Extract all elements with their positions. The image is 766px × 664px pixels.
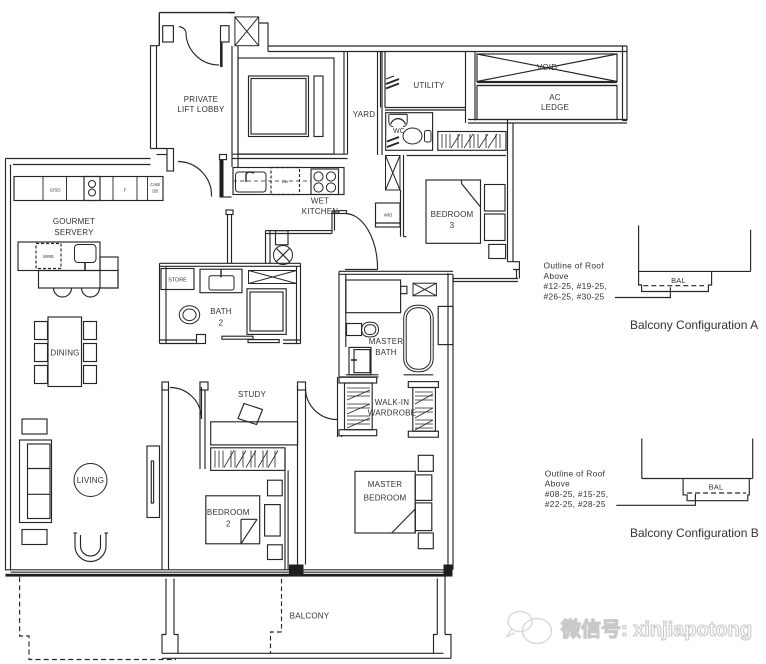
svg-text:WC: WC xyxy=(393,128,405,135)
svg-text:WARDROBE: WARDROBE xyxy=(368,409,416,418)
svg-text:Above: Above xyxy=(545,479,570,489)
svg-text:YARD: YARD xyxy=(353,110,375,119)
svg-text:WET: WET xyxy=(311,197,329,206)
svg-text:Balcony Configuration B: Balcony Configuration B xyxy=(630,526,759,540)
svg-text:BEDROOM: BEDROOM xyxy=(207,508,250,517)
svg-text:Balcony Configuration A: Balcony Configuration A xyxy=(630,318,758,332)
svg-text:DW: DW xyxy=(282,179,289,184)
svg-text:#12-25, #19-25,: #12-25, #19-25, xyxy=(544,281,608,291)
svg-text:W/D: W/D xyxy=(384,213,393,218)
svg-text:BATH: BATH xyxy=(210,307,232,316)
svg-text:VOID: VOID xyxy=(537,63,557,72)
svg-text:UTILITY: UTILITY xyxy=(413,81,445,90)
svg-text:#22-25, #28-25: #22-25, #28-25 xyxy=(545,499,606,509)
svg-text:STORE: STORE xyxy=(168,278,187,284)
svg-text:BEDROOM: BEDROOM xyxy=(364,494,407,503)
svg-text:STUDY: STUDY xyxy=(238,390,267,399)
svg-text:F: F xyxy=(124,188,127,193)
svg-text:LEDGE: LEDGE xyxy=(541,103,569,112)
svg-text:LIVING: LIVING xyxy=(77,476,104,485)
svg-text:CAB/: CAB/ xyxy=(150,182,161,187)
svg-text:SERVERY: SERVERY xyxy=(54,228,94,237)
svg-text:LIFT LOBBY: LIFT LOBBY xyxy=(177,105,225,114)
svg-text:AC: AC xyxy=(549,93,561,102)
svg-text:Above: Above xyxy=(544,271,569,281)
svg-text:DB: DB xyxy=(152,189,158,194)
svg-text:WALK-IN: WALK-IN xyxy=(375,398,409,407)
svg-text:BATH: BATH xyxy=(375,348,397,357)
svg-text:微信号: xinjiapotong: 微信号: xinjiapotong xyxy=(560,617,752,641)
svg-text:BAL: BAL xyxy=(671,276,686,285)
svg-text:BALCONY: BALCONY xyxy=(290,612,330,621)
svg-text:PRIVATE: PRIVATE xyxy=(184,95,218,104)
svg-text:GOURMET: GOURMET xyxy=(53,217,95,226)
svg-text:BAL: BAL xyxy=(709,483,724,492)
svg-text:MASTER: MASTER xyxy=(369,337,404,346)
svg-text:G/SD: G/SD xyxy=(50,188,61,193)
svg-text:3: 3 xyxy=(450,221,455,230)
svg-text:Outline of Roof: Outline of Roof xyxy=(545,468,606,478)
svg-text:2: 2 xyxy=(219,319,224,328)
svg-text:#26-25, #30-25: #26-25, #30-25 xyxy=(544,291,605,301)
svg-text:#08-25, #15-25,: #08-25, #15-25, xyxy=(545,489,609,499)
svg-text:WINE: WINE xyxy=(43,254,54,259)
svg-text:DINING: DINING xyxy=(50,349,79,358)
svg-text:Outline of Roof: Outline of Roof xyxy=(544,261,605,271)
svg-text:BEDROOM: BEDROOM xyxy=(431,210,474,219)
svg-text:2: 2 xyxy=(226,520,231,529)
svg-text:MASTER: MASTER xyxy=(368,480,403,489)
